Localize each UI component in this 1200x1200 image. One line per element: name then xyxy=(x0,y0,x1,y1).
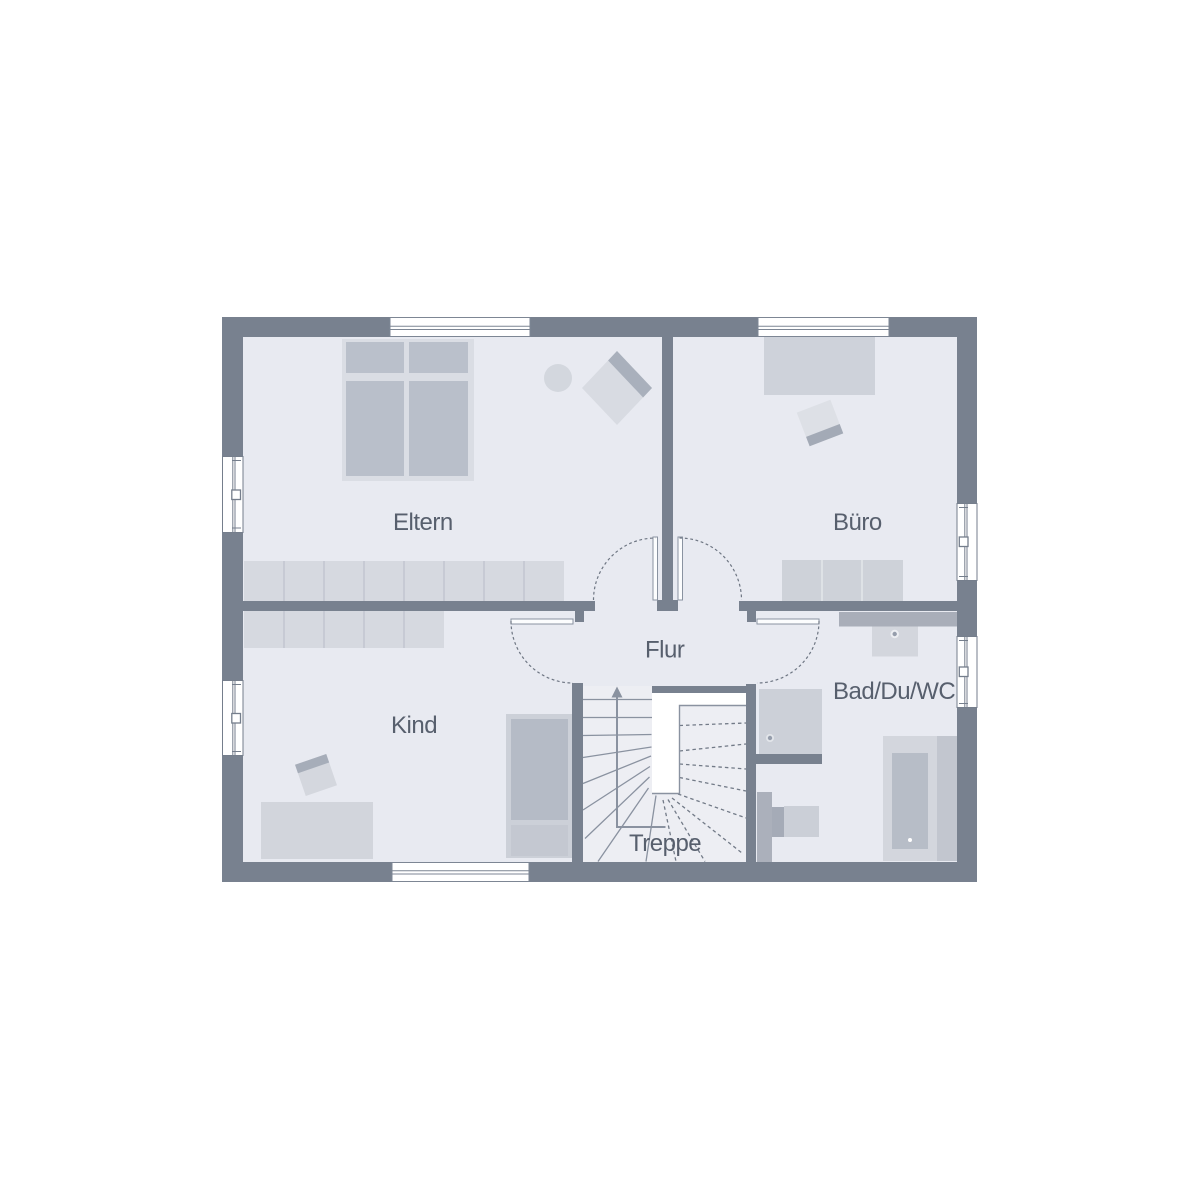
svg-text:Bad/Du/WC: Bad/Du/WC xyxy=(833,678,955,705)
svg-text:Flur: Flur xyxy=(645,637,685,664)
svg-text:Eltern: Eltern xyxy=(393,509,453,536)
svg-text:Treppe: Treppe xyxy=(629,830,701,857)
svg-text:Büro: Büro xyxy=(833,509,882,536)
svg-text:Kind: Kind xyxy=(391,712,437,739)
